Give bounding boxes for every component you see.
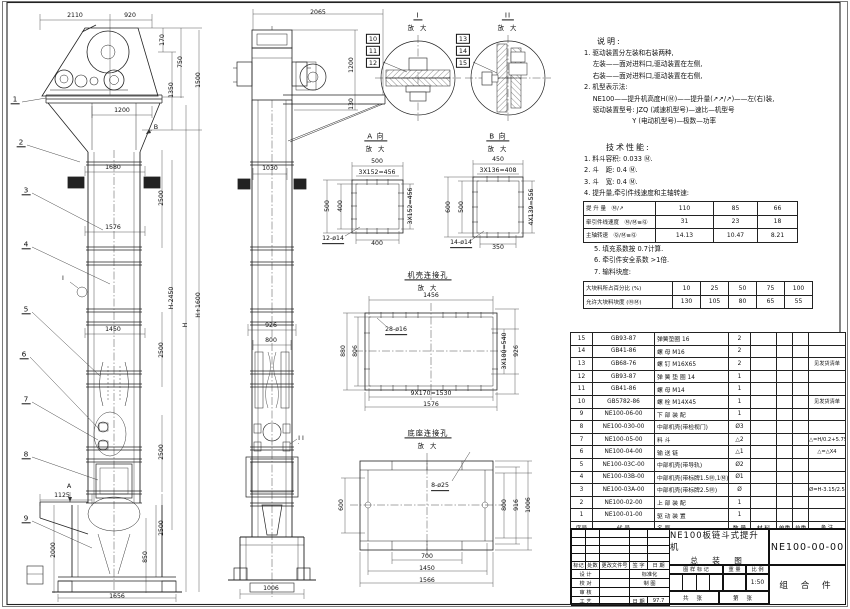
table-row: 主轴转速 Ⓠ/Ⓜ≡Ⓠ14.1310.478.21 [584, 229, 798, 243]
side-dim-lines [240, 9, 385, 599]
dim-label: 500 [459, 201, 465, 213]
dim-label: 1200 [114, 108, 130, 114]
dim-label: 2500 [159, 342, 165, 358]
drawing-sheet: 2110 920 170 750 1350 1500 1200 1680 250… [0, 0, 850, 609]
text-line: 1. 料斗容积: 0.033 Ⓜ. [584, 154, 844, 165]
stamp-header: 比 例 [746, 565, 769, 574]
dim-label: 3X152=456 [408, 188, 414, 225]
table-row: 5NE100-03C-00中部机壳(带导轨)Ø2 [571, 458, 846, 471]
table-row: 1NE100-01-00驱 动 装 置1 [571, 509, 846, 522]
dim-label: 450 [492, 157, 504, 163]
stamp-mark-boxes [669, 574, 723, 591]
tech-specs-title: 技术性能: [606, 142, 651, 153]
text-line: 6. 牵引件安全系数 >1倍. [594, 255, 844, 266]
dim-label: 2065 [310, 10, 326, 16]
section-b-marker: B [154, 124, 160, 130]
dim-label: H+1600 [196, 292, 202, 318]
part-ref-number: 15 [456, 58, 470, 68]
dim-label: 1680 [105, 165, 121, 171]
dim-label: 1006 [526, 497, 532, 513]
dim-label: 2500 [159, 520, 165, 536]
dim-label: 170 [160, 34, 166, 46]
revision-table: 标记处数 更改文件号签 字 日 期 设 计标准化 校 对制 图 审 核 工 艺日… [571, 529, 670, 606]
table-row: 牵引件线速度 Ⓜ/Ⓜ≡Ⓠ312318 [584, 215, 798, 229]
dim-label: 880 [341, 345, 347, 357]
detail-i [375, 35, 461, 121]
part-ref-number: 4 [22, 240, 31, 249]
dim-label: 800 [265, 338, 277, 344]
front-leader-lines [22, 98, 152, 548]
table-row: 7NE100-05-00料 斗△2△=H/0.2+5.75 [571, 433, 846, 446]
table-row: 10GB5782-86螺 栓 M14X451见发货清单 [571, 395, 846, 408]
dim-label: 400 [338, 200, 344, 212]
table-row: 11GB41-86螺 母 M141 [571, 383, 846, 396]
hole-callout: 12-ø14 [322, 236, 344, 244]
part-ref-number: 1 [11, 95, 20, 104]
dim-label: 1006 [263, 586, 279, 592]
dim-label: 500 [371, 159, 383, 165]
weight-value [723, 574, 746, 591]
view-a-title: A 向 [364, 132, 387, 141]
dim-label: 2110 [67, 13, 83, 19]
part-ref-number: 13 [456, 34, 470, 44]
part-ref-number: 7 [22, 395, 31, 404]
dim-label: 926 [514, 345, 520, 357]
dim-label: 1200 [349, 57, 355, 73]
table-row: 4NE100-03B-00中部机壳(带标牌1.5Ⓜ,1Ⓜ)Ø1 [571, 471, 846, 484]
dim-label: 130 [349, 98, 355, 110]
table-row: 提 升 量 Ⓜ/↗1108566 [584, 202, 798, 216]
text-line: NE100——提升机高度H(Ⓜ)——提升量(↗↗/↗)——左(右)装, [584, 94, 844, 105]
dim-label: 350 [492, 245, 504, 251]
dim-label: 1500 [196, 72, 202, 88]
lump-size-table: 大块料所占百分比 (%)10255075100允许大块料块度 (ⓂⓂ)13010… [583, 281, 813, 309]
part-ref-number: 14 [456, 46, 470, 56]
dim-label: 926 [265, 323, 277, 329]
dim-label: 920 [124, 13, 136, 19]
dim-label: 1450 [419, 566, 435, 572]
dim-label: 800 [502, 499, 508, 511]
dim-label: 700 [421, 554, 433, 560]
casing-view-title: 机壳连接孔 [405, 271, 452, 280]
stamp-area: 图 样 标 记 重 量 比 例 1:50 [669, 565, 769, 591]
role-row: 工 艺日 期97.7 [572, 597, 670, 606]
dim-label: 1566 [419, 578, 435, 584]
table-row: 8NE100-030-00中部机壳(带检视门)Ø3 [571, 421, 846, 434]
detail-i-zoom-label: 放 大 [408, 25, 429, 31]
dim-label: 806 [353, 345, 359, 357]
drawing-number: NE100-00-00 [771, 542, 844, 553]
table-row: 14GB41-86螺 母 M162 [571, 345, 846, 358]
stamp-header: 重 量 [723, 565, 746, 574]
section-a-marker: A [67, 483, 73, 489]
dim-label: 3X136=408 [480, 168, 517, 174]
sheet-total-label: 共 张 [669, 591, 719, 605]
detail-ii [465, 35, 551, 121]
text-line: 2. 斗 距: 0.4 Ⓜ. [584, 165, 844, 176]
dim-label: 3X180=540 [502, 333, 508, 370]
sheet-name: 总 装 图 [690, 555, 748, 566]
text-line: Y (电动机型号)—极数—功率 [584, 116, 844, 127]
detail-i-marker: I [62, 275, 66, 281]
drawing-number-cell: NE100-00-00 [769, 529, 846, 565]
role-row: 审 核 [572, 588, 670, 597]
dim-label: 3X152=456 [359, 170, 396, 176]
sheet-number-label: 第 张 [719, 591, 769, 605]
title-block: 标记处数 更改文件号签 字 日 期 设 计标准化 校 对制 图 审 核 工 艺日… [570, 528, 845, 604]
dim-label: 916 [514, 499, 520, 511]
casing-view-zoom-label: 放 大 [418, 285, 439, 291]
base-view-title: 底座连接孔 [405, 429, 452, 438]
part-ref-number: 6 [20, 350, 29, 359]
drawing-title: NE100板链斗式提升机 总 装 图 [669, 529, 769, 565]
hole-callout: 14-ø14 [450, 240, 472, 248]
product-name: NE100板链斗式提升机 [670, 529, 768, 553]
table-row: 允许大块料块度 (ⓂⓂ)130105806555 [584, 295, 813, 309]
table-row: 12GB93-87弹 簧 垫 圈 141 [571, 370, 846, 383]
base-view-zoom-label: 放 大 [418, 443, 439, 449]
text-line: 2. 机型表示法: [584, 82, 844, 93]
side-elevation [228, 26, 385, 597]
part-ref-number: 10 [366, 34, 380, 44]
part-ref-number: 8 [22, 450, 31, 459]
view-b-zoom-label: 放 大 [488, 146, 509, 152]
scale-value: 1:50 [746, 574, 769, 591]
table-row: 2NE100-02-00上 部 装 配1 [571, 496, 846, 509]
part-ref-number: 12 [366, 58, 380, 68]
dim-label: 4X139=556 [529, 189, 535, 226]
stamp-header: 图 样 标 记 [669, 565, 723, 574]
dim-label: 1350 [169, 82, 175, 98]
dim-label: H-2450 [169, 287, 175, 310]
detail-ii-marker: II [298, 435, 306, 441]
text-line: 1. 驱动装置分左装和右装两种, [584, 48, 844, 59]
part-ref-number: 3 [22, 186, 31, 195]
role-row: 设 计标准化 [572, 570, 670, 579]
part-type: 组 合 件 [779, 579, 835, 591]
parts-list: 15GB93-87弹簧垫圈 16214GB41-86螺 母 M16213GB68… [570, 332, 846, 535]
table-row: 6NE100-04-00输 送 链△1△=△X4 [571, 446, 846, 459]
table-row: 3NE100-03A-00中部机壳(带标牌2.5Ⓜ)ØØ=H-3.15/2.5 [571, 484, 846, 497]
text-line: 7. 输料块度: [594, 267, 844, 278]
table-row: 大块料所占百分比 (%)10255075100 [584, 282, 813, 296]
tech-specs-text: 1. 料斗容积: 0.033 Ⓜ.2. 斗 距: 0.4 Ⓜ.3. 斗 宽: 0… [584, 154, 844, 200]
detail-i-title: I [413, 11, 422, 20]
revision-header-row: 标记处数 更改文件号签 字 日 期 [572, 562, 670, 570]
dim-label: 1030 [262, 166, 278, 172]
text-line: 驱动装置型号: JZQ (减速机型号)—速比—机型号 [584, 105, 844, 116]
detail-ii-zoom-label: 放 大 [498, 25, 519, 31]
notes-title: 说明: [597, 36, 622, 47]
base-holes-view [341, 452, 532, 587]
dim-label: H [183, 323, 189, 328]
dim-label: 850 [143, 551, 149, 563]
dim-label: 750 [178, 56, 184, 68]
text-line: 5. 填充系数按 0.7计算. [594, 244, 844, 255]
table-row: 9NE100-06-00下 部 装 配1 [571, 408, 846, 421]
part-ref-number: 9 [22, 514, 31, 523]
dim-label: 2500 [159, 444, 165, 460]
text-line: 4. 提升量,牵引件线速度和主轴转速: [584, 188, 844, 199]
part-type-cell: 组 合 件 [769, 565, 846, 605]
text-line: 3. 斗 宽: 0.4 Ⓜ. [584, 177, 844, 188]
dim-label: 600 [339, 499, 345, 511]
front-dim-lines [40, 14, 202, 602]
table-row: 15GB93-87弹簧垫圈 162 [571, 333, 846, 346]
part-ref-number: 2 [17, 138, 26, 147]
dim-label: 1656 [109, 594, 125, 600]
dim-label: 1456 [423, 293, 439, 299]
dim-label: 9X170=1530 [411, 391, 452, 397]
detail-ii-title: II [502, 11, 514, 20]
dim-label: 1576 [105, 225, 121, 231]
dim-label: 500 [325, 200, 331, 212]
part-ref-number: 5 [22, 305, 31, 314]
text-line: 左装——面对进料口,驱动装置在左侧, [584, 59, 844, 70]
dim-label: 400 [371, 241, 383, 247]
notes-text: 1. 驱动装置分左装和右装两种, 左装——面对进料口,驱动装置在左侧, 右装——… [584, 48, 844, 128]
text-line: 右装——面对进料口,驱动装置在右侧, [584, 71, 844, 82]
tech-specs-text-2: 5. 填充系数按 0.7计算.6. 牵引件安全系数 >1倍.7. 输料块度: [594, 244, 844, 278]
table-row: 13GB68-76螺 钉 M16X652见发货清单 [571, 358, 846, 371]
hole-callout: 8-ø25 [431, 483, 449, 491]
dim-label: 2000 [51, 542, 57, 558]
dim-label: 1576 [423, 402, 439, 408]
dim-label: 1450 [105, 327, 121, 333]
sheet-count-row: 共 张 第 张 [669, 591, 769, 605]
part-ref-number: 11 [366, 46, 380, 56]
view-b-title: B 向 [486, 132, 509, 141]
hole-callout: 28-ø16 [385, 327, 407, 335]
front-elevation [27, 25, 182, 597]
speed-table: 提 升 量 Ⓜ/↗1108566牵引件线速度 Ⓜ/Ⓜ≡Ⓠ312318主轴转速 Ⓠ… [583, 201, 798, 243]
dim-label: 2500 [159, 190, 165, 206]
role-row: 校 对制 图 [572, 579, 670, 588]
dim-label: 1125 [54, 493, 70, 499]
view-a-zoom-label: 放 大 [366, 146, 387, 152]
side-leader-lines [290, 439, 297, 444]
dim-label: 600 [446, 201, 452, 213]
